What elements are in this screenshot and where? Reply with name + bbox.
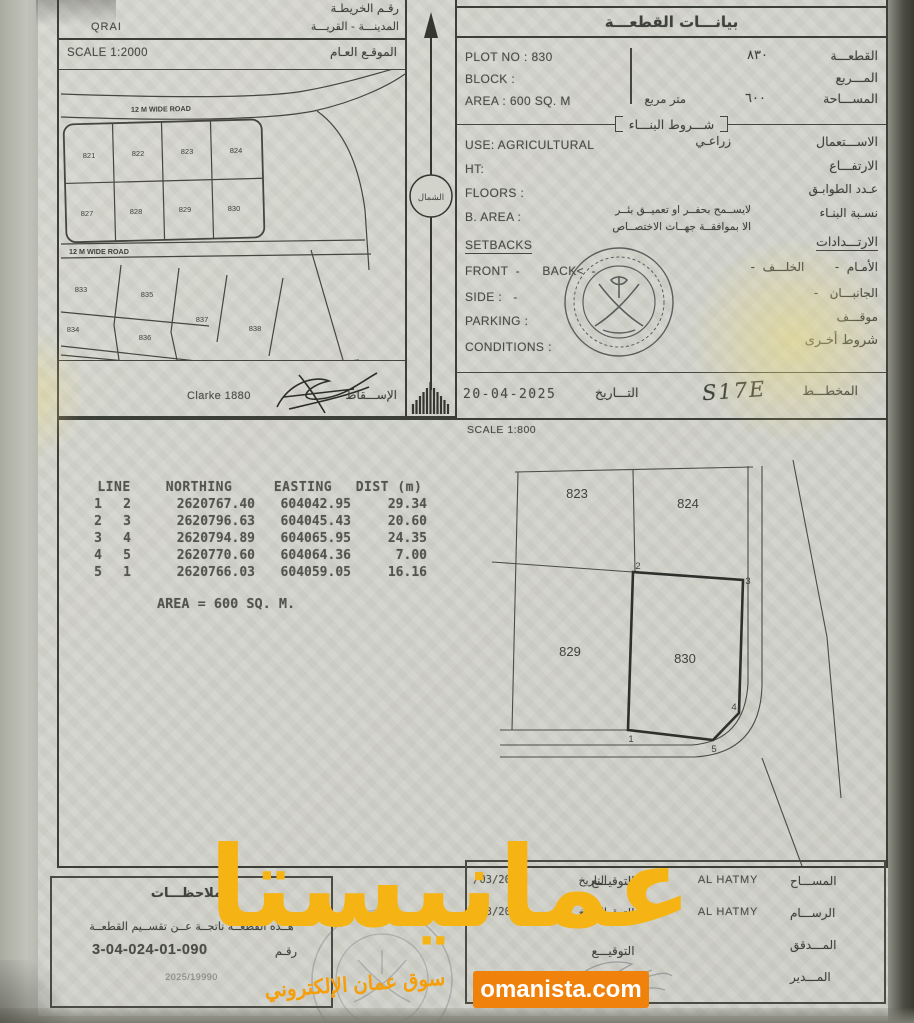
coordinates-table: LINE NORTHING EASTING DIST (m) 1 2 26207… [85,480,427,580]
floors-ar-label: عـدد الطوابـق [809,182,878,196]
parent-plot-number: 3-04-024-01-090 [92,942,208,958]
building-conditions-title: شـــروط البنـــاء [623,117,720,132]
road-curve-line [317,111,369,270]
cell: 2620794.89 [143,531,255,546]
plot-number: 827 [81,209,94,218]
use-ar-label: الاســـتعمال [816,134,878,149]
area-ar-label: المســـاحة [823,91,878,106]
plot-number: 824 [230,146,243,155]
city-village-value: QRAI [91,21,122,33]
north-indicator-strip: الشمال [405,0,457,418]
plot-number: 835 [141,290,154,299]
corner-2: 2 [635,561,640,572]
corner-3: 3 [745,576,750,587]
plot-number: 821 [83,151,96,160]
side-ar: الجانبـــان - [814,286,878,300]
well-note-line2: الا بموافقــة جهــات الاختصــاص [612,221,751,233]
plot-boundary [512,472,518,730]
height-en: HT: [465,162,484,176]
cell: 2 [85,514,111,529]
north-base-ornament [413,382,448,414]
plan-code-value: S17E [701,377,767,405]
area-unit-ar: متر مربع [645,92,686,106]
plot-boundary [311,250,343,360]
cell: 2620766.03 [143,565,255,580]
map-scale-row: SCALE 1:2000 الموقـع العـام [59,40,405,70]
setbacks-en: SETBACKS [465,238,532,254]
cell: 2620767.40 [143,497,255,512]
plot-no-en: PLOT NO : 830 [465,50,553,64]
cell: 16.16 [351,565,427,580]
setbacks-ar-label: الارتـــدادات [816,234,878,251]
plot-boundary [515,467,753,472]
built-area-en: B. AREA : [465,210,521,224]
area-ar-value: ٦٠٠ [745,91,766,106]
rule-line [728,124,886,125]
official-stamp-seal-icon [559,242,679,362]
cell: 5 [111,548,143,563]
scanned-land-plan-document: رقـم الخريطـة المدينـــة - القريـــة QRA… [0,0,914,1023]
cell: 604059.05 [255,565,351,580]
plot-no-ar-value: ٨٣٠ [747,48,768,63]
field-divider-line [630,48,632,104]
plot-boundary [793,460,841,798]
conditions-ar: شروط أخـرى [805,333,878,348]
plot-boundary [217,275,227,342]
plot-number: 834 [67,325,80,334]
location-map-drawing: 821 822 823 824 827 828 829 830 833 835 … [59,70,405,360]
height-ar-label: الارتفـــاع [829,158,878,173]
road-labels: 12 M WIDE ROAD 12 M WIDE ROAD [69,104,191,256]
parking-ar: موقـــف [837,310,878,324]
projection-label: الإســـقاط [345,388,397,402]
floors-en: FLOORS : [465,186,524,200]
bracket-icon [720,116,728,132]
plot-label-829: 829 [559,644,581,659]
well-note-line1: لايســمح بحفــر او تعميــق بئــر [615,204,751,216]
plot-boundary [492,562,633,572]
cell: 24.35 [351,531,427,546]
cell: 20.60 [351,514,427,529]
cell: 604042.95 [255,497,351,512]
corner-1: 1 [628,734,633,745]
plot-divider [65,178,263,183]
location-map-panel: رقـم الخريطـة المدينـــة - القريـــة QRA… [57,0,405,418]
col-header-northing: NORTHING [143,480,255,495]
front-back-ar: الأمـام - الخلـــف - [751,260,878,274]
cell: 2620770.60 [143,548,255,563]
plot-number: 822 [132,149,145,158]
conditions-en: CONDITIONS : [465,340,552,354]
role-label: المـــدقق [790,938,876,952]
plot-boundary [61,312,209,326]
cell: 4 [85,548,111,563]
rule-line [457,124,615,125]
plot-number: 833 [75,285,88,294]
plot-data-panel: بيانـــات القطعـــة PLOT NO : 830 ٨٣٠ ال… [457,0,888,418]
built-area-ar-label: نسـبة البنـاء [820,206,878,220]
cell: 5 [85,565,111,580]
plan-label: المخطـــط [802,383,858,398]
role-label: المـــدير [790,970,876,984]
scan-edge-shadow [0,0,38,1023]
approval-date-value: 20-04-2025 [463,387,556,402]
map-number-label: رقـم الخريطـة [331,1,399,15]
plot-label-823: 823 [566,486,588,501]
projection-row: Clarke 1880 الإســـقاط [59,360,405,418]
general-location-label: الموقـع العـام [330,45,397,59]
plot-number: 828 [130,207,143,216]
block-ar-label: المـــربع [835,70,878,85]
watermark-site-url: omanista.com [480,976,641,1004]
cell: 7.00 [351,548,427,563]
role-label: المســـاح [790,874,876,888]
site-plan-scale: SCALE 1:800 [467,424,536,436]
plot-data-title: بيانـــات القطعـــة [605,13,738,31]
road-line [61,70,404,97]
cell: 3 [111,514,143,529]
plot-number: 823 [181,147,194,156]
area-en: AREA : 600 SQ. M [465,94,571,108]
plot-boundary [633,470,635,572]
plot-boundary [61,346,359,360]
cell: 2620796.63 [143,514,255,529]
corner-5: 5 [711,744,716,755]
cell: 604064.36 [255,548,351,563]
bracket-icon [615,116,623,132]
block-en: BLOCK : [465,72,515,86]
road-line [500,466,748,745]
col-header-dist: DIST (m) [351,480,427,495]
plot-data-title-row: بيانـــات القطعـــة [457,6,886,38]
north-arrow-icon: الشمال [405,0,457,418]
plot-number: 836 [139,333,152,342]
date-label: التـــاريخ [595,385,638,400]
use-en: USE: AGRICULTURAL [465,138,594,152]
cell: 604065.95 [255,531,351,546]
plot-number: 829 [179,205,192,214]
plot-number: 837 [196,315,209,324]
role-label: الرســـام [790,906,876,920]
cell: 4 [111,531,143,546]
watermark-site-button: omanista.com [473,971,649,1008]
road-line [762,758,802,866]
cell: 1 [111,565,143,580]
site-plan-drawing: 823 824 829 830 2 3 4 5 1 [457,458,888,866]
date-plan-row: 20-04-2025 التـــاريخ S17E المخطـــط [457,372,886,418]
plot-boundary [269,278,283,356]
building-conditions-header: شـــروط البنـــاء [457,116,886,132]
corner-4: 4 [731,702,736,713]
plot-boundary [171,268,179,360]
plot-label-830: 830 [674,651,696,666]
map-scale-value: SCALE 1:2000 [67,47,148,59]
cell: 29.34 [351,497,427,512]
col-header-line: LINE [85,480,143,495]
parking-en: PARKING : [465,314,528,328]
map-header-row: رقـم الخريطـة المدينـــة - القريـــة QRA… [59,0,405,40]
plot-number: 830 [228,204,241,213]
watermark-brand-text: عمانيستا [222,832,692,944]
cell: 1 [85,497,111,512]
plot-number: 838 [249,324,262,333]
col-header-easting: EASTING [255,480,351,495]
projection-datum-value: Clarke 1880 [187,390,251,402]
north-label: الشمال [418,192,444,202]
cell: 3 [85,531,111,546]
cell: 2 [111,497,143,512]
city-village-label: المدينـــة - القريـــة [311,20,399,33]
side-en: SIDE : - [465,290,518,304]
area-note: AREA = 600 SQ. M. [157,596,295,612]
road-label: 12 M WIDE ROAD [131,104,191,114]
road-label: 12 M WIDE ROAD [69,247,129,256]
cell: 604045.43 [255,514,351,529]
plot-label-824: 824 [677,496,699,511]
use-ar-value: زراعـي [695,134,731,148]
plot-boundary [114,265,121,360]
plot-no-ar-label: القطعـــة [830,48,878,63]
